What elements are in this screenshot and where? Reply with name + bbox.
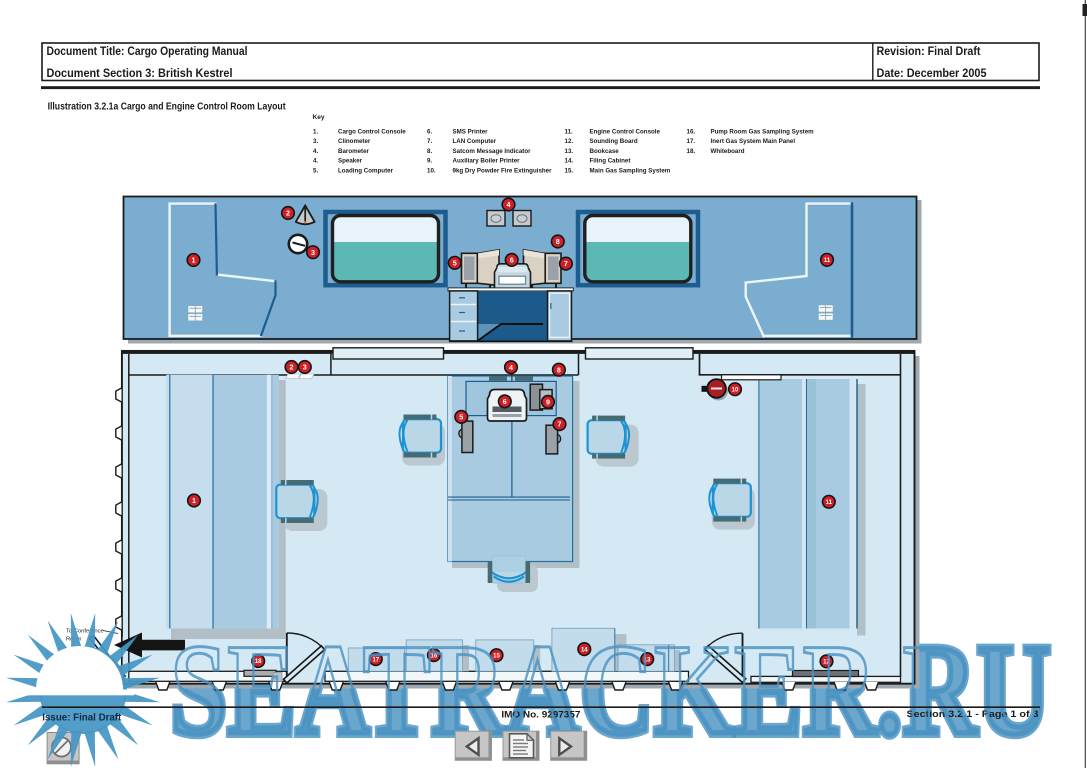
svg-text:Issue: Final Draft: Issue: Final Draft [42,713,122,724]
svg-text:9: 9 [546,397,550,406]
svg-text:14.: 14. [565,158,574,165]
svg-text:7.: 7. [427,138,432,145]
svg-text:Illustration 3.2.1a Cargo and: Illustration 3.2.1a Cargo and Engine Con… [48,102,287,113]
svg-text:12.: 12. [565,138,574,145]
svg-text:Barometer: Barometer [338,148,370,155]
svg-text:Bookcase: Bookcase [590,148,620,155]
svg-text:11: 11 [826,500,833,506]
svg-text:9kg Dry Powder Fire Extinguish: 9kg Dry Powder Fire Extinguisher [453,168,553,175]
svg-text:Sounding Board: Sounding Board [590,138,638,145]
svg-text:6: 6 [503,397,507,406]
svg-text:Main Gas Sampling System: Main Gas Sampling System [590,168,671,175]
svg-text:2: 2 [286,209,290,218]
svg-text:7: 7 [564,259,568,268]
svg-text:1: 1 [192,256,196,265]
svg-text:SEATRACKER.RU: SEATRACKER.RU [170,616,1051,763]
svg-text:6: 6 [510,255,514,264]
svg-text:Whiteboard: Whiteboard [711,148,745,155]
svg-text:Document Title: Cargo Operatin: Document Title: Cargo Operating Manual [47,44,248,58]
svg-text:6.: 6. [427,128,432,135]
svg-text:18.: 18. [687,148,696,155]
svg-text:8: 8 [557,365,561,374]
svg-text:1.: 1. [313,128,318,135]
svg-text:3: 3 [311,248,315,257]
svg-text:Satcom Message Indicator: Satcom Message Indicator [453,148,532,155]
svg-text:10: 10 [732,387,739,393]
svg-text:5: 5 [459,412,463,421]
svg-text:4: 4 [509,363,513,372]
svg-text:SMS Printer: SMS Printer [453,128,489,135]
svg-text:9.: 9. [427,158,432,165]
svg-text:Document Section 3: British Ke: Document Section 3: British Kestrel [47,66,233,80]
svg-text:Inert Gas System Main Panel: Inert Gas System Main Panel [711,138,796,145]
svg-text:Loading Computer: Loading Computer [338,168,394,175]
svg-text:8: 8 [556,237,560,246]
svg-text:1: 1 [192,496,196,505]
svg-text:17.: 17. [687,138,696,145]
svg-text:Auxiliary Boiler Printer: Auxiliary Boiler Printer [453,158,521,165]
svg-text:LAN Computer: LAN Computer [453,138,497,145]
svg-text:4: 4 [507,200,511,209]
svg-text:Engine Control Console: Engine Control Console [590,128,661,135]
svg-text:7: 7 [558,420,562,429]
svg-text:Speaker: Speaker [338,158,363,165]
svg-text:15.: 15. [565,168,574,175]
svg-text:13.: 13. [565,148,574,155]
svg-text:11.: 11. [565,128,574,135]
svg-text:Clinometer: Clinometer [338,138,371,145]
svg-text:Date: December 2005: Date: December 2005 [877,66,987,80]
svg-text:Pump Room Gas Sampling System: Pump Room Gas Sampling System [711,128,815,135]
svg-text:16.: 16. [687,128,696,135]
svg-text:Filing Cabinet: Filing Cabinet [590,158,631,165]
svg-text:4.: 4. [313,158,318,165]
svg-text:3.: 3. [313,138,318,145]
svg-text:8.: 8. [427,148,432,155]
svg-text:5.: 5. [313,168,318,175]
svg-text:Revision: Final Draft: Revision: Final Draft [877,44,981,58]
svg-text:2: 2 [290,363,294,372]
svg-text:4.: 4. [313,148,318,155]
svg-text:5: 5 [453,258,457,267]
svg-text:10.: 10. [427,168,436,175]
svg-text:11: 11 [824,258,831,264]
svg-text:3: 3 [303,363,307,372]
svg-text:Key: Key [313,114,325,121]
svg-text:Cargo Control Console: Cargo Control Console [338,128,406,135]
